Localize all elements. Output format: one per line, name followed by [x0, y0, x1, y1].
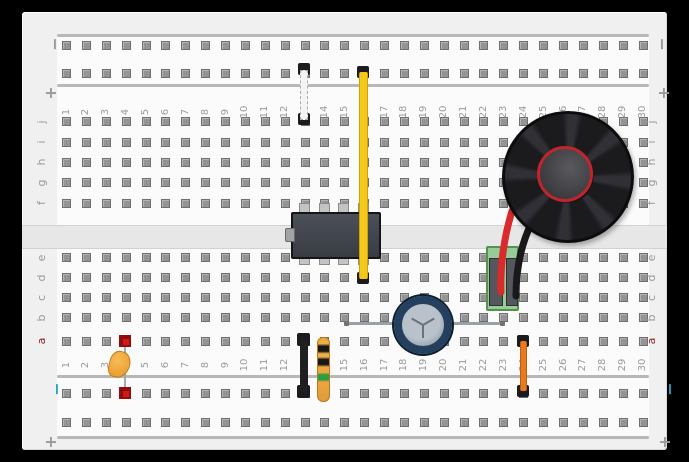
breadboard-hole[interactable] [62, 178, 71, 187]
breadboard-hole[interactable] [181, 199, 190, 208]
breadboard-hole[interactable] [142, 389, 151, 398]
breadboard-hole[interactable] [440, 389, 449, 398]
breadboard-hole[interactable] [62, 199, 71, 208]
breadboard-hole[interactable] [82, 337, 91, 346]
breadboard-hole[interactable] [340, 337, 349, 346]
breadboard-hole[interactable] [181, 293, 190, 302]
breadboard-hole[interactable] [619, 389, 628, 398]
breadboard-hole[interactable] [281, 389, 290, 398]
breadboard-hole[interactable] [539, 418, 548, 427]
breadboard-hole[interactable] [102, 158, 111, 167]
breadboard-hole[interactable] [539, 253, 548, 262]
breadboard-hole[interactable] [122, 313, 131, 322]
breadboard-hole[interactable] [440, 418, 449, 427]
breadboard-hole[interactable] [142, 41, 151, 50]
breadboard-hole[interactable] [559, 337, 568, 346]
breadboard-hole[interactable] [241, 253, 250, 262]
breadboard-hole[interactable] [122, 178, 131, 187]
breadboard-hole[interactable] [102, 418, 111, 427]
breadboard-hole[interactable] [479, 69, 488, 78]
breadboard-hole[interactable] [301, 418, 310, 427]
breadboard-hole[interactable] [420, 69, 429, 78]
breadboard-hole[interactable] [360, 389, 369, 398]
breadboard-hole[interactable] [420, 138, 429, 147]
breadboard-hole[interactable] [440, 158, 449, 167]
breadboard-hole[interactable] [599, 253, 608, 262]
breadboard-hole[interactable] [102, 313, 111, 322]
breadboard-hole[interactable] [400, 273, 409, 282]
breadboard-hole[interactable] [102, 253, 111, 262]
breadboard-hole[interactable] [599, 337, 608, 346]
jumper-wire-yellow[interactable] [359, 72, 368, 279]
breadboard-hole[interactable] [261, 293, 270, 302]
breadboard-hole[interactable] [579, 69, 588, 78]
breadboard-hole[interactable] [201, 293, 210, 302]
breadboard-hole[interactable] [82, 69, 91, 78]
breadboard-hole[interactable] [221, 69, 230, 78]
breadboard-hole[interactable] [400, 199, 409, 208]
breadboard-hole[interactable] [559, 418, 568, 427]
breadboard-hole[interactable] [102, 199, 111, 208]
breadboard-hole[interactable] [440, 273, 449, 282]
breadboard-hole[interactable] [181, 389, 190, 398]
breadboard-hole[interactable] [579, 313, 588, 322]
breadboard-hole[interactable] [519, 418, 528, 427]
breadboard-hole[interactable] [261, 158, 270, 167]
breadboard-hole[interactable] [122, 158, 131, 167]
breadboard-hole[interactable] [340, 158, 349, 167]
breadboard-hole[interactable] [241, 41, 250, 50]
breadboard-hole[interactable] [400, 418, 409, 427]
breadboard-hole[interactable] [380, 138, 389, 147]
breadboard-hole[interactable] [281, 199, 290, 208]
breadboard-hole[interactable] [221, 418, 230, 427]
breadboard-hole[interactable] [559, 389, 568, 398]
breadboard-hole[interactable] [599, 418, 608, 427]
breadboard-hole[interactable] [241, 138, 250, 147]
breadboard-hole[interactable] [559, 69, 568, 78]
breadboard-hole[interactable] [460, 418, 469, 427]
breadboard-hole[interactable] [161, 178, 170, 187]
breadboard-hole[interactable] [519, 293, 528, 302]
breadboard-hole[interactable] [499, 389, 508, 398]
breadboard-hole[interactable] [360, 293, 369, 302]
breadboard-hole[interactable] [420, 253, 429, 262]
breadboard-hole[interactable] [619, 418, 628, 427]
breadboard-hole[interactable] [440, 41, 449, 50]
breadboard-hole[interactable] [261, 389, 270, 398]
breadboard-hole[interactable] [440, 178, 449, 187]
breadboard-hole[interactable] [102, 41, 111, 50]
breadboard-hole[interactable] [420, 199, 429, 208]
breadboard-hole[interactable] [380, 178, 389, 187]
breadboard-hole[interactable] [241, 158, 250, 167]
breadboard-hole[interactable] [281, 337, 290, 346]
breadboard-hole[interactable] [619, 69, 628, 78]
breadboard-hole[interactable] [519, 41, 528, 50]
breadboard-hole[interactable] [400, 41, 409, 50]
breadboard-hole[interactable] [460, 178, 469, 187]
breadboard-hole[interactable] [519, 313, 528, 322]
breadboard-hole[interactable] [201, 41, 210, 50]
breadboard-hole[interactable] [539, 313, 548, 322]
breadboard-hole[interactable] [301, 138, 310, 147]
breadboard-hole[interactable] [261, 253, 270, 262]
breadboard-hole[interactable] [261, 138, 270, 147]
breadboard-hole[interactable] [301, 41, 310, 50]
breadboard-hole[interactable] [82, 293, 91, 302]
breadboard-hole[interactable] [241, 389, 250, 398]
breadboard-hole[interactable] [499, 138, 508, 147]
breadboard-hole[interactable] [440, 253, 449, 262]
breadboard-hole[interactable] [241, 337, 250, 346]
breadboard-hole[interactable] [499, 337, 508, 346]
breadboard-hole[interactable] [161, 253, 170, 262]
breadboard-hole[interactable] [241, 293, 250, 302]
breadboard-hole[interactable] [261, 178, 270, 187]
breadboard-hole[interactable] [599, 389, 608, 398]
breadboard-hole[interactable] [142, 337, 151, 346]
breadboard-hole[interactable] [460, 389, 469, 398]
breadboard-hole[interactable] [161, 69, 170, 78]
breadboard-hole[interactable] [181, 158, 190, 167]
breadboard-hole[interactable] [82, 253, 91, 262]
breadboard-hole[interactable] [122, 69, 131, 78]
breadboard-hole[interactable] [301, 293, 310, 302]
breadboard-hole[interactable] [301, 273, 310, 282]
breadboard-hole[interactable] [82, 178, 91, 187]
breadboard-hole[interactable] [261, 418, 270, 427]
breadboard-hole[interactable] [340, 178, 349, 187]
breadboard-hole[interactable] [142, 178, 151, 187]
breadboard-hole[interactable] [122, 41, 131, 50]
breadboard-hole[interactable] [380, 313, 389, 322]
breadboard-hole[interactable] [519, 69, 528, 78]
breadboard-hole[interactable] [82, 158, 91, 167]
jumper-wire-black[interactable] [300, 340, 308, 392]
breadboard-hole[interactable] [161, 418, 170, 427]
breadboard-hole[interactable] [261, 41, 270, 50]
breadboard-hole[interactable] [142, 69, 151, 78]
breadboard-hole[interactable] [460, 69, 469, 78]
breadboard-hole[interactable] [320, 138, 329, 147]
breadboard-hole[interactable] [539, 293, 548, 302]
breadboard-hole[interactable] [579, 418, 588, 427]
breadboard-hole[interactable] [479, 178, 488, 187]
breadboard-hole[interactable] [639, 418, 648, 427]
breadboard-hole[interactable] [460, 273, 469, 282]
breadboard-hole[interactable] [62, 273, 71, 282]
breadboard-hole[interactable] [539, 389, 548, 398]
breadboard-hole[interactable] [460, 313, 469, 322]
breadboard-hole[interactable] [102, 178, 111, 187]
breadboard-hole[interactable] [261, 337, 270, 346]
breadboard-hole[interactable] [619, 273, 628, 282]
breadboard-hole[interactable] [340, 389, 349, 398]
breadboard-hole[interactable] [420, 41, 429, 50]
breadboard-hole[interactable] [62, 337, 71, 346]
breadboard-hole[interactable] [82, 418, 91, 427]
breadboard-hole[interactable] [460, 158, 469, 167]
resistor[interactable] [317, 337, 330, 402]
breadboard-hole[interactable] [301, 178, 310, 187]
breadboard-hole[interactable] [62, 293, 71, 302]
breadboard-hole[interactable] [340, 41, 349, 50]
breadboard-hole[interactable] [559, 253, 568, 262]
breadboard-hole[interactable] [579, 273, 588, 282]
breadboard-hole[interactable] [619, 313, 628, 322]
breadboard-hole[interactable] [420, 418, 429, 427]
breadboard-hole[interactable] [221, 138, 230, 147]
breadboard-hole[interactable] [460, 41, 469, 50]
breadboard-hole[interactable] [420, 158, 429, 167]
breadboard-hole[interactable] [261, 313, 270, 322]
breadboard-hole[interactable] [380, 158, 389, 167]
breadboard-hole[interactable] [161, 293, 170, 302]
breadboard-hole[interactable] [161, 138, 170, 147]
breadboard-hole[interactable] [122, 138, 131, 147]
breadboard-hole[interactable] [281, 138, 290, 147]
breadboard-hole[interactable] [639, 389, 648, 398]
breadboard-hole[interactable] [380, 337, 389, 346]
breadboard-hole[interactable] [62, 138, 71, 147]
jumper-wire-orange[interactable] [520, 341, 527, 391]
breadboard-hole[interactable] [161, 313, 170, 322]
breadboard-hole[interactable] [122, 273, 131, 282]
breadboard-hole[interactable] [440, 293, 449, 302]
breadboard-hole[interactable] [400, 69, 409, 78]
breadboard-hole[interactable] [82, 199, 91, 208]
breadboard-hole[interactable] [142, 273, 151, 282]
breadboard-hole[interactable] [82, 273, 91, 282]
breadboard-hole[interactable] [201, 418, 210, 427]
breadboard-hole[interactable] [479, 337, 488, 346]
breadboard-hole[interactable] [241, 418, 250, 427]
breadboard-hole[interactable] [619, 293, 628, 302]
breadboard-hole[interactable] [519, 253, 528, 262]
breadboard-hole[interactable] [400, 178, 409, 187]
breadboard-hole[interactable] [619, 253, 628, 262]
breadboard-hole[interactable] [181, 178, 190, 187]
breadboard-hole[interactable] [579, 293, 588, 302]
breadboard-hole[interactable] [380, 41, 389, 50]
breadboard-hole[interactable] [261, 273, 270, 282]
breadboard-hole[interactable] [181, 337, 190, 346]
breadboard-hole[interactable] [261, 199, 270, 208]
breadboard-hole[interactable] [380, 389, 389, 398]
breadboard-hole[interactable] [82, 41, 91, 50]
breadboard-hole[interactable] [201, 389, 210, 398]
breadboard-hole[interactable] [241, 273, 250, 282]
breadboard-hole[interactable] [559, 41, 568, 50]
breadboard-hole[interactable] [221, 293, 230, 302]
breadboard-hole[interactable] [479, 418, 488, 427]
breadboard-hole[interactable] [281, 158, 290, 167]
highlighted-hole[interactable] [119, 335, 131, 347]
breadboard-hole[interactable] [460, 253, 469, 262]
breadboard-hole[interactable] [420, 389, 429, 398]
breadboard-hole[interactable] [122, 253, 131, 262]
breadboard-hole[interactable] [539, 337, 548, 346]
breadboard-hole[interactable] [380, 253, 389, 262]
breadboard-hole[interactable] [221, 273, 230, 282]
breadboard-hole[interactable] [619, 337, 628, 346]
breadboard-hole[interactable] [62, 158, 71, 167]
breadboard-hole[interactable] [221, 158, 230, 167]
breadboard-hole[interactable] [62, 313, 71, 322]
breadboard-hole[interactable] [400, 389, 409, 398]
breadboard-hole[interactable] [340, 293, 349, 302]
breadboard-hole[interactable] [261, 69, 270, 78]
breadboard-hole[interactable] [181, 41, 190, 50]
breadboard-hole[interactable] [639, 41, 648, 50]
breadboard-hole[interactable] [499, 69, 508, 78]
breadboard-hole[interactable] [161, 389, 170, 398]
breadboard-hole[interactable] [380, 418, 389, 427]
breadboard-hole[interactable] [599, 293, 608, 302]
breadboard-hole[interactable] [400, 253, 409, 262]
breadboard-hole[interactable] [400, 158, 409, 167]
breadboard-hole[interactable] [360, 418, 369, 427]
breadboard-hole[interactable] [479, 41, 488, 50]
breadboard-hole[interactable] [380, 273, 389, 282]
breadboard-hole[interactable] [161, 273, 170, 282]
breadboard-hole[interactable] [479, 313, 488, 322]
breadboard-hole[interactable] [161, 199, 170, 208]
breadboard-hole[interactable] [320, 418, 329, 427]
breadboard-hole[interactable] [559, 273, 568, 282]
breadboard-hole[interactable] [161, 41, 170, 50]
breadboard-hole[interactable] [340, 418, 349, 427]
breadboard-hole[interactable] [201, 313, 210, 322]
breadboard-hole[interactable] [579, 41, 588, 50]
breadboard-hole[interactable] [460, 138, 469, 147]
breadboard-hole[interactable] [301, 313, 310, 322]
breadboard-hole[interactable] [400, 138, 409, 147]
breadboard-hole[interactable] [380, 199, 389, 208]
breadboard-hole[interactable] [460, 293, 469, 302]
breadboard-hole[interactable] [221, 389, 230, 398]
breadboard-hole[interactable] [201, 178, 210, 187]
breadboard-hole[interactable] [241, 313, 250, 322]
breadboard-hole[interactable] [102, 337, 111, 346]
breadboard-hole[interactable] [479, 389, 488, 398]
breadboard-hole[interactable] [281, 418, 290, 427]
breadboard-hole[interactable] [619, 41, 628, 50]
breadboard-hole[interactable] [241, 199, 250, 208]
speaker[interactable] [502, 111, 634, 243]
breadboard-hole[interactable] [82, 138, 91, 147]
breadboard-hole[interactable] [221, 253, 230, 262]
breadboard-hole[interactable] [420, 273, 429, 282]
breadboard-hole[interactable] [360, 337, 369, 346]
breadboard-hole[interactable] [62, 253, 71, 262]
breadboard-hole[interactable] [559, 293, 568, 302]
breadboard-hole[interactable] [221, 41, 230, 50]
jumper-wire-white[interactable] [300, 70, 308, 120]
breadboard-hole[interactable] [201, 273, 210, 282]
breadboard-hole[interactable] [142, 293, 151, 302]
breadboard-hole[interactable] [519, 273, 528, 282]
breadboard-hole[interactable] [499, 41, 508, 50]
breadboard-hole[interactable] [301, 158, 310, 167]
breadboard-hole[interactable] [599, 69, 608, 78]
breadboard-hole[interactable] [320, 273, 329, 282]
breadboard-hole[interactable] [599, 313, 608, 322]
breadboard-hole[interactable] [142, 418, 151, 427]
breadboard-hole[interactable] [539, 69, 548, 78]
breadboard-hole[interactable] [281, 273, 290, 282]
breadboard-hole[interactable] [142, 199, 151, 208]
breadboard-hole[interactable] [181, 313, 190, 322]
breadboard-hole[interactable] [62, 418, 71, 427]
breadboard-hole[interactable] [440, 69, 449, 78]
breadboard-hole[interactable] [340, 138, 349, 147]
breadboard-hole[interactable] [201, 69, 210, 78]
breadboard-hole[interactable] [340, 69, 349, 78]
breadboard-hole[interactable] [181, 418, 190, 427]
breadboard-hole[interactable] [102, 273, 111, 282]
breadboard-hole[interactable] [320, 158, 329, 167]
breadboard-hole[interactable] [599, 273, 608, 282]
highlighted-hole[interactable] [119, 387, 131, 399]
breadboard-hole[interactable] [281, 178, 290, 187]
breadboard-hole[interactable] [181, 253, 190, 262]
breadboard-hole[interactable] [420, 178, 429, 187]
breadboard-hole[interactable] [221, 178, 230, 187]
breadboard-hole[interactable] [380, 293, 389, 302]
breadboard-hole[interactable] [201, 337, 210, 346]
breadboard-hole[interactable] [360, 41, 369, 50]
breadboard-hole[interactable] [102, 138, 111, 147]
breadboard-hole[interactable] [122, 418, 131, 427]
breadboard-hole[interactable] [440, 138, 449, 147]
breadboard-hole[interactable] [320, 313, 329, 322]
breadboard-hole[interactable] [499, 418, 508, 427]
breadboard-hole[interactable] [579, 337, 588, 346]
breadboard-hole[interactable] [142, 253, 151, 262]
breadboard-hole[interactable] [539, 273, 548, 282]
breadboard-hole[interactable] [320, 293, 329, 302]
electrolytic-capacitor[interactable] [394, 296, 452, 354]
breadboard-hole[interactable] [281, 253, 290, 262]
breadboard-hole[interactable] [161, 158, 170, 167]
breadboard-hole[interactable] [281, 313, 290, 322]
breadboard-hole[interactable] [201, 253, 210, 262]
breadboard-hole[interactable] [241, 178, 250, 187]
breadboard-hole[interactable] [102, 293, 111, 302]
breadboard-hole[interactable] [181, 69, 190, 78]
breadboard-hole[interactable] [201, 138, 210, 147]
breadboard-hole[interactable] [221, 199, 230, 208]
breadboard-hole[interactable] [460, 199, 469, 208]
breadboard-hole[interactable] [142, 138, 151, 147]
breadboard-hole[interactable] [479, 199, 488, 208]
breadboard-hole[interactable] [579, 253, 588, 262]
breadboard-hole[interactable] [380, 69, 389, 78]
breadboard-hole[interactable] [142, 313, 151, 322]
breadboard-hole[interactable] [559, 313, 568, 322]
breadboard-hole[interactable] [479, 158, 488, 167]
breadboard-hole[interactable] [201, 199, 210, 208]
breadboard-hole[interactable] [62, 69, 71, 78]
breadboard-hole[interactable] [281, 69, 290, 78]
breadboard-hole[interactable] [281, 41, 290, 50]
breadboard-hole[interactable] [281, 293, 290, 302]
breadboard-hole[interactable] [340, 273, 349, 282]
breadboard-hole[interactable] [241, 69, 250, 78]
breadboard-hole[interactable] [320, 69, 329, 78]
